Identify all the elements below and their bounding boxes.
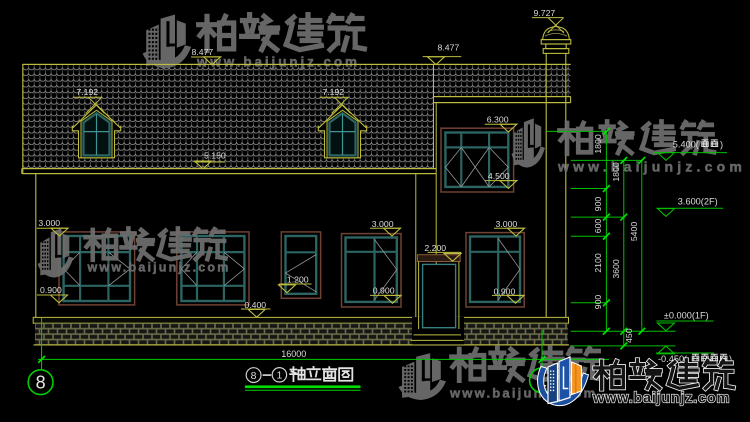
svg-text:0.900: 0.900 [373,286,395,296]
svg-text:±0.000(1F): ±0.000(1F) [664,311,709,321]
svg-text:www.baijunjz.com: www.baijunjz.com [592,391,730,407]
svg-text:1.200: 1.200 [287,274,309,284]
svg-text:8.477: 8.477 [438,43,460,53]
svg-text:4.500: 4.500 [488,171,510,181]
svg-text:www.baijunjz.com: www.baijunjz.com [87,261,231,275]
svg-text:3.000: 3.000 [38,218,60,228]
svg-text:450: 450 [624,328,634,343]
svg-text:8.477: 8.477 [192,47,214,57]
svg-text:0.900: 0.900 [40,285,62,295]
svg-text:): ) [720,140,723,150]
svg-text:900: 900 [593,295,603,310]
svg-text:8: 8 [251,370,257,382]
svg-text:16000: 16000 [281,349,306,359]
svg-text:6.300: 6.300 [487,115,509,125]
svg-text:0.400: 0.400 [244,300,266,310]
svg-text:2100: 2100 [593,253,603,272]
svg-text:900: 900 [593,197,603,212]
svg-text:5.150: 5.150 [204,151,226,161]
svg-text:3.000: 3.000 [372,219,394,229]
svg-text:9.727: 9.727 [534,8,556,18]
svg-text:3.600(2F): 3.600(2F) [678,197,718,207]
svg-text:7.192: 7.192 [322,87,344,97]
svg-text:5.400(: 5.400( [673,140,699,150]
svg-text:8: 8 [36,373,46,393]
svg-text:1800: 1800 [611,162,621,181]
svg-text:0.900: 0.900 [494,287,516,297]
svg-text:1: 1 [276,370,282,382]
svg-text:7.192: 7.192 [76,87,98,97]
svg-text:1800: 1800 [593,134,603,153]
svg-text:600: 600 [593,219,603,234]
svg-text:5400: 5400 [629,222,639,241]
svg-text:3.000: 3.000 [496,219,518,229]
svg-text:3600: 3600 [611,259,621,278]
svg-text:2.200: 2.200 [424,243,446,253]
